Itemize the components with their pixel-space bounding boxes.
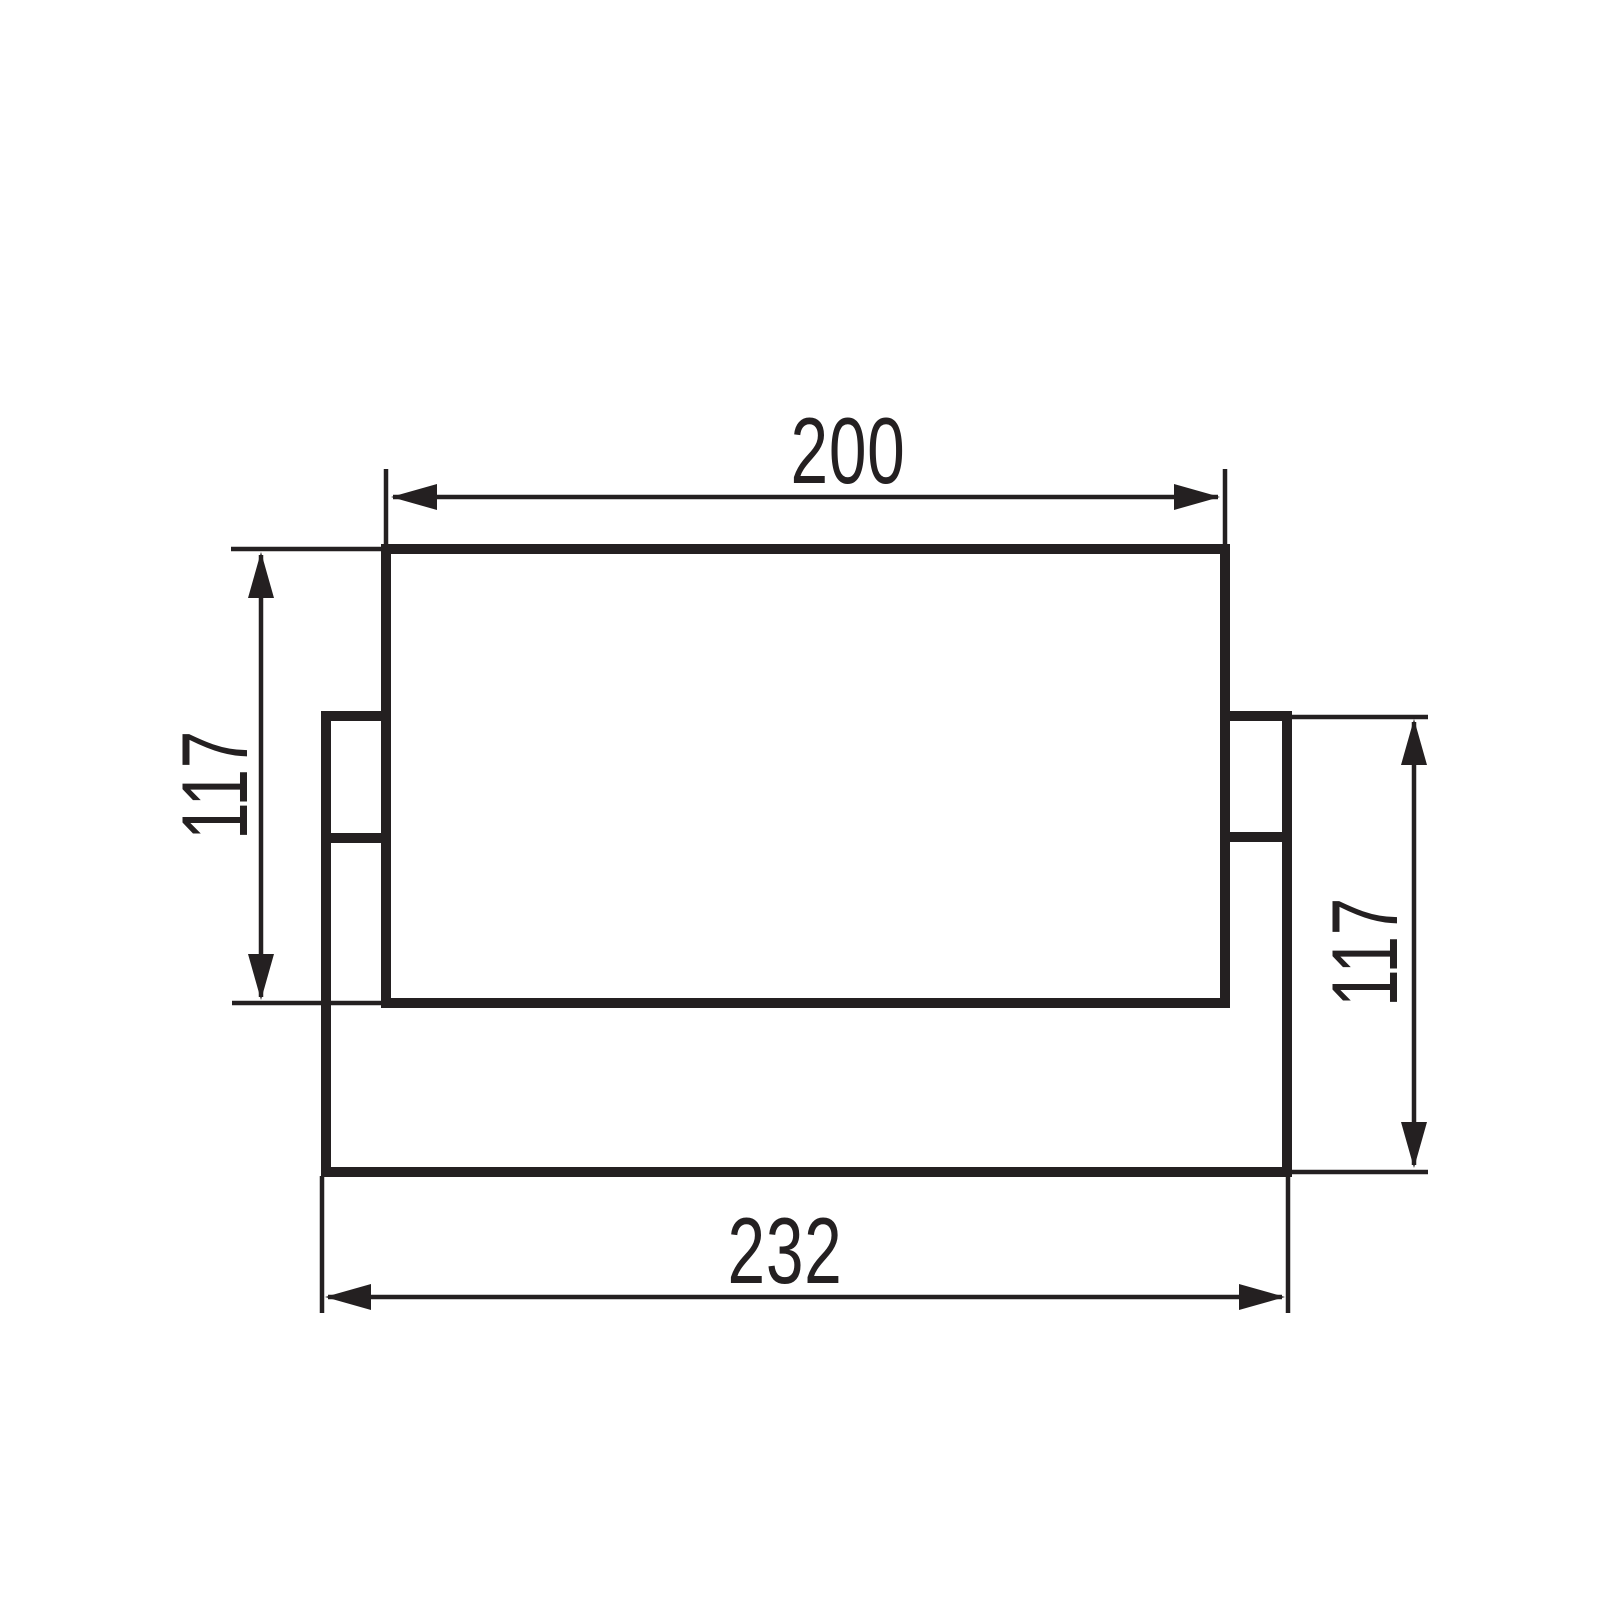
dim-label-left: 117	[163, 730, 267, 840]
drawing-canvas: lampemania.dk 200	[0, 0, 1599, 1600]
arrowhead-down-icon	[248, 954, 274, 1000]
right-tab	[1220, 716, 1292, 837]
dim-label-top: 200	[790, 399, 905, 503]
dim-label-bottom: 232	[727, 1199, 842, 1303]
arrowhead-left-icon	[325, 1284, 371, 1310]
arrowhead-left-icon	[391, 484, 437, 510]
arrowhead-right-icon	[1239, 1284, 1285, 1310]
arrowhead-right-icon	[1174, 484, 1220, 510]
dimension-right-117: 117	[1290, 717, 1428, 1172]
dimension-top-200: 200	[386, 399, 1225, 544]
arrowhead-up-icon	[248, 552, 274, 598]
inner-box	[386, 549, 1225, 1003]
left-tab	[321, 716, 391, 838]
arrowhead-up-icon	[1401, 719, 1427, 765]
dim-label-right: 117	[1313, 897, 1417, 1007]
dimension-drawing: lampemania.dk 200	[0, 0, 1599, 1600]
dimension-left-117: 117	[163, 549, 384, 1003]
arrowhead-down-icon	[1401, 1122, 1427, 1168]
dimension-bottom-232: 232	[322, 1176, 1288, 1313]
fixture-outline	[321, 549, 1292, 1172]
